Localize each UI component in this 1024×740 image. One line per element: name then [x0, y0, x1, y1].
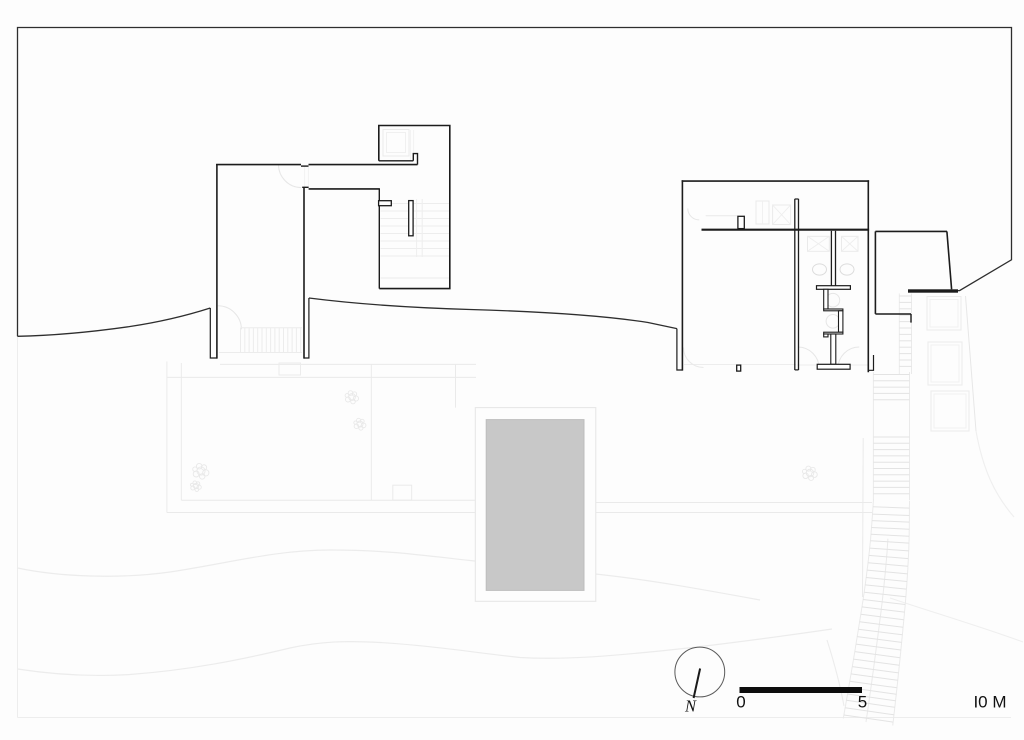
svg-text:N: N — [684, 697, 697, 716]
svg-text:0: 0 — [736, 693, 745, 712]
svg-text:5: 5 — [858, 693, 867, 712]
svg-text:I0 M: I0 M — [973, 693, 1006, 712]
